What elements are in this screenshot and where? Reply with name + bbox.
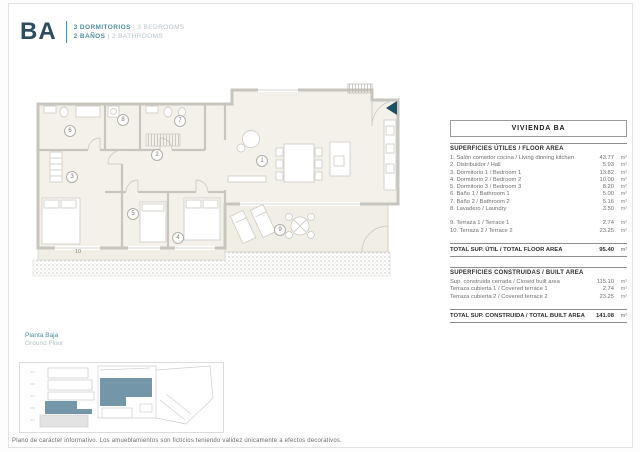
table-row: 10. Terraza 2 / Terrace 223.25m² [450, 228, 627, 235]
room-label-2: 2 [151, 149, 163, 161]
room-label-1: 1 [256, 155, 268, 167]
floor-label: Planta Baja Ground Floor [25, 332, 63, 347]
table-row: 8. Lavadero / Laundry3.50m² [450, 206, 627, 213]
room-label-9: 9 [274, 224, 286, 236]
table-row: 6. Baño 1 / Bathroom 15.00m² [450, 191, 627, 198]
room-label-6: 6 [64, 125, 76, 137]
table-row: 4. Dormitorio 2 / Bedroom 210.00m² [450, 177, 627, 184]
table-row: Terraza cubierta 1 / Covered terrace 12.… [450, 286, 627, 293]
table-row: Terraza cubierta 2 / Covered terrace 223… [450, 294, 627, 301]
room-label-10: 10 [70, 249, 86, 255]
table-row: 1. Salón comedor cocina / Living dinning… [450, 155, 627, 162]
room-label-5: 5 [127, 208, 139, 220]
vent-hatch [348, 84, 372, 93]
floor-label-en: Ground Floor [25, 340, 63, 348]
table-row: 5. Dormitorio 3 / Bedroom 38.20m² [450, 184, 627, 191]
table-row: 2. Distribuidor / Hall5.93m² [450, 162, 627, 169]
table-row: 7. Baño 2 / Bathroom 25.16m² [450, 199, 627, 206]
room-label-7: 7 [174, 115, 186, 127]
total-built-area-row: TOTAL SUP. CONSTRUIDA / TOTAL BUILT AREA… [450, 309, 627, 323]
table-title: VIVIENDA BA [450, 120, 627, 137]
floor-label-es: Planta Baja [25, 332, 63, 340]
room-label-8: 8 [117, 114, 129, 126]
table-row: 3. Dormitorio 1 / Bedroom 113.82m² [450, 170, 627, 177]
disclaimer-text: Plano de carácter informativo. Los amueb… [12, 438, 342, 444]
built-area-heading: SUPERFICIES CONSTRUIDAS / BUILT AREA [450, 267, 627, 277]
area-table: VIVIENDA BA SUPERFICIES ÚTILES / FLOOR A… [450, 120, 627, 323]
total-floor-area-row: TOTAL SUP. ÚTIL / TOTAL FLOOR AREA95.40m… [450, 243, 627, 257]
floor-area-heading: SUPERFICIES ÚTILES / FLOOR AREA [450, 143, 627, 153]
room-label-3: 3 [66, 171, 78, 183]
thumbnail-box [19, 362, 224, 433]
table-row: 9. Terraza 1 / Terrace 12.74m² [450, 220, 627, 227]
table-row: Sup. construida cerrada / Closed built a… [450, 279, 627, 286]
room-label-4: 4 [172, 232, 184, 244]
